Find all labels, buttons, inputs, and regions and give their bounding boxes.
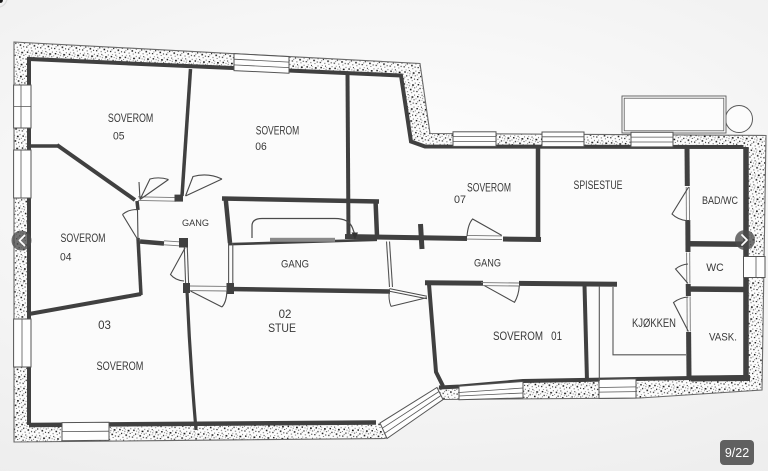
svg-text:KJØKKEN: KJØKKEN: [632, 317, 676, 330]
svg-text:07: 07: [454, 194, 466, 206]
svg-text:STUE: STUE: [268, 322, 296, 335]
svg-text:SOVEROM: SOVEROM: [108, 112, 153, 126]
svg-text:GANG: GANG: [281, 259, 309, 271]
svg-text:SOVEROM: SOVEROM: [61, 232, 106, 246]
svg-text:WC: WC: [706, 262, 724, 274]
svg-text:GANG: GANG: [182, 218, 209, 228]
svg-text:06: 06: [255, 141, 267, 153]
svg-text:04: 04: [60, 251, 72, 263]
svg-text:VASK.: VASK.: [709, 331, 737, 344]
svg-text:SOVEROM: SOVEROM: [256, 125, 299, 138]
svg-text:9/22: 9/22: [725, 446, 749, 460]
svg-text:BAD/WC: BAD/WC: [702, 195, 738, 207]
svg-text:SOVEROM: SOVEROM: [467, 182, 511, 195]
svg-text:SOVEROM 01: SOVEROM 01: [493, 330, 562, 343]
svg-text:02: 02: [279, 309, 292, 321]
svg-text:SOVEROM: SOVEROM: [97, 360, 144, 373]
svg-text:GANG: GANG: [474, 258, 501, 270]
svg-text:SPISESTUE: SPISESTUE: [574, 180, 623, 193]
svg-text:05: 05: [113, 130, 125, 142]
svg-text:03: 03: [98, 320, 111, 332]
